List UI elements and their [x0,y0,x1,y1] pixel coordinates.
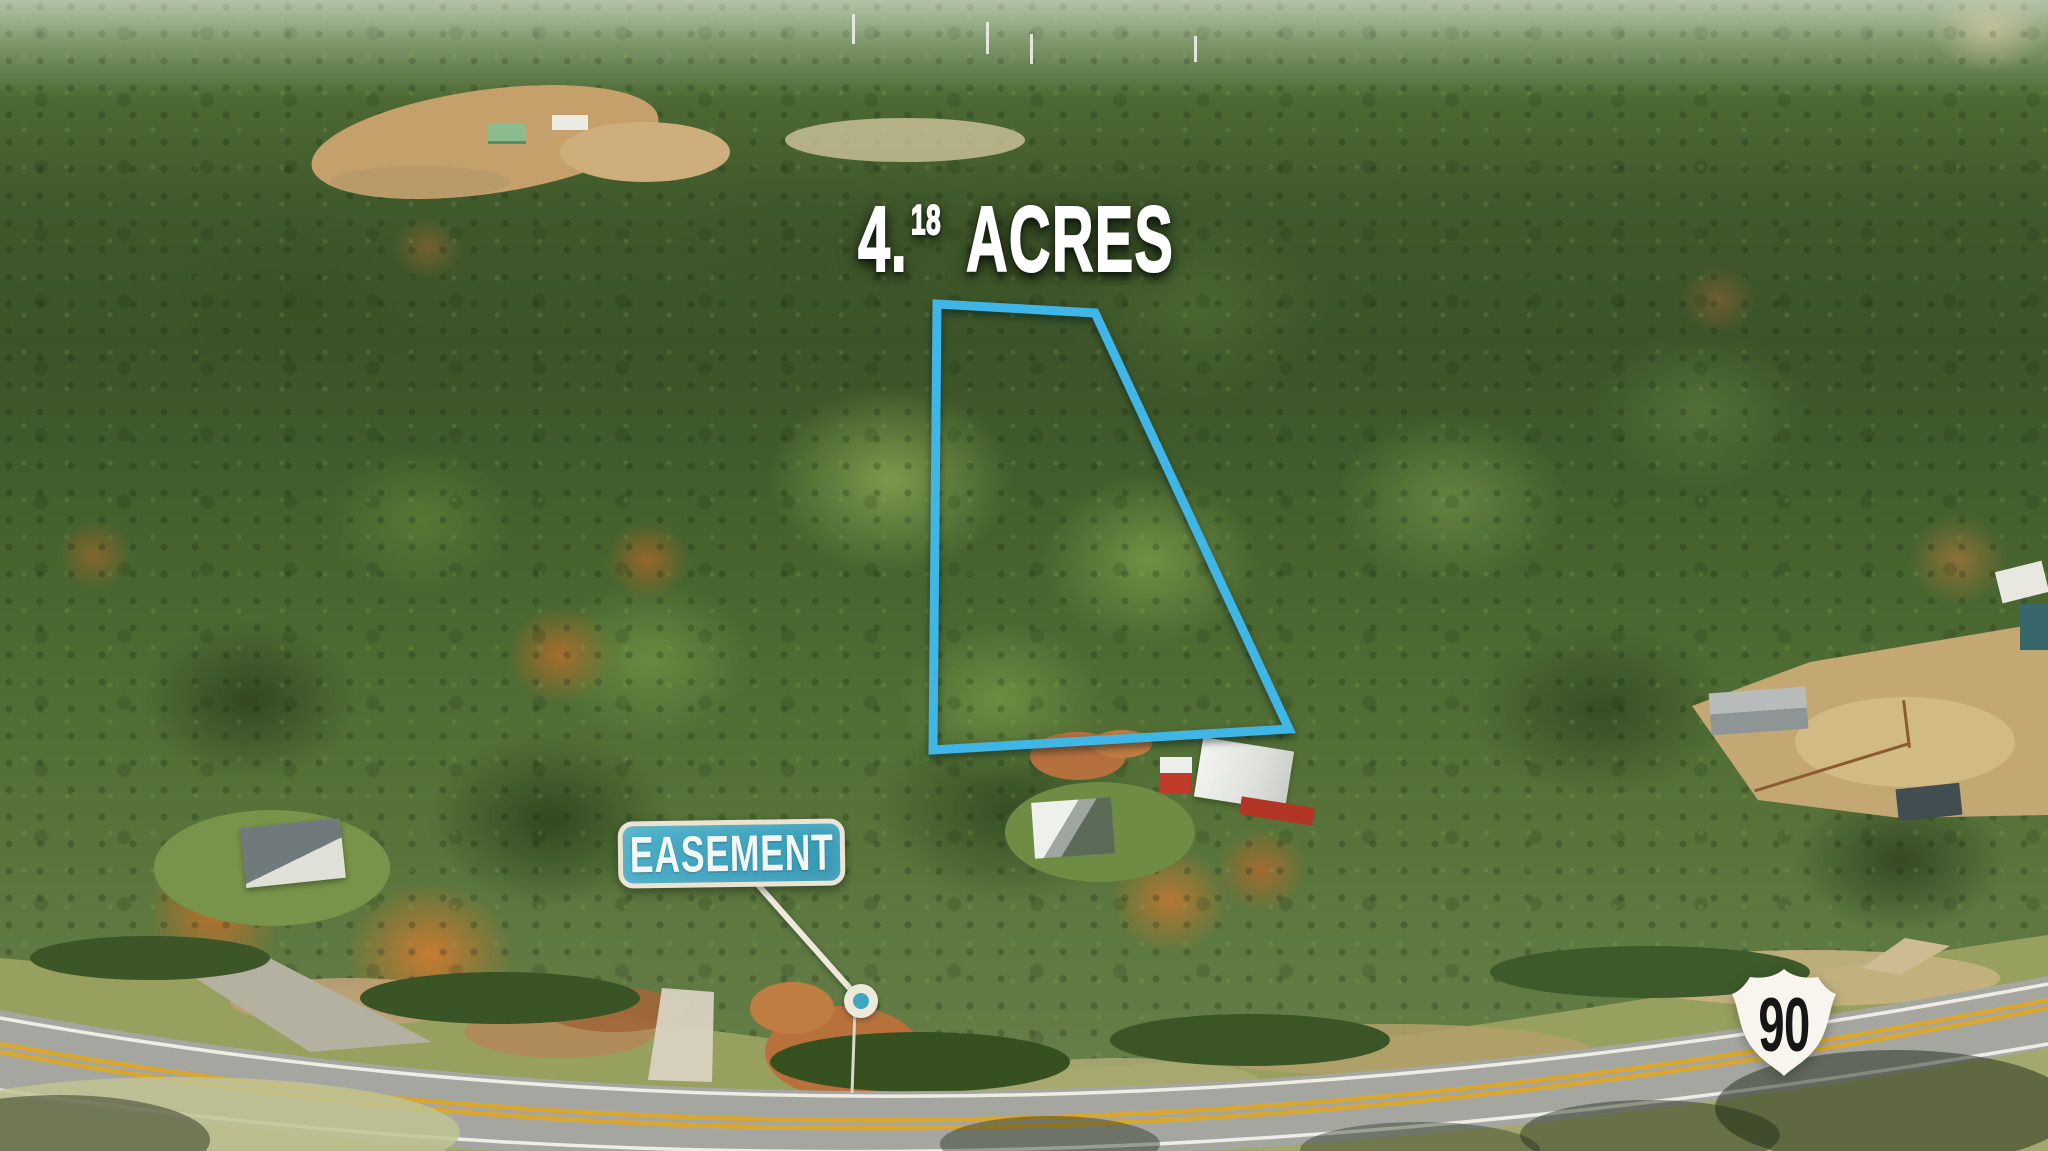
easement-badge-label: EASEMENT [629,827,834,881]
easement-leader-line [759,886,861,1001]
us-route-90-shield: 90 [1726,964,1842,1082]
route-number: 90 [1748,988,1820,1064]
aerial-listing-photo: 4.18ACRES EASEMENT 90 [0,0,2048,1151]
acreage-superscript: 18 [911,199,941,241]
acreage-unit: ACRES [966,193,1174,286]
acreage-number: 4. [858,193,907,286]
property-boundary-polygon [933,304,1289,750]
easement-marker-inner [853,993,869,1009]
easement-badge: EASEMENT [618,818,846,888]
acreage-label: 4.18ACRES [858,193,1174,286]
